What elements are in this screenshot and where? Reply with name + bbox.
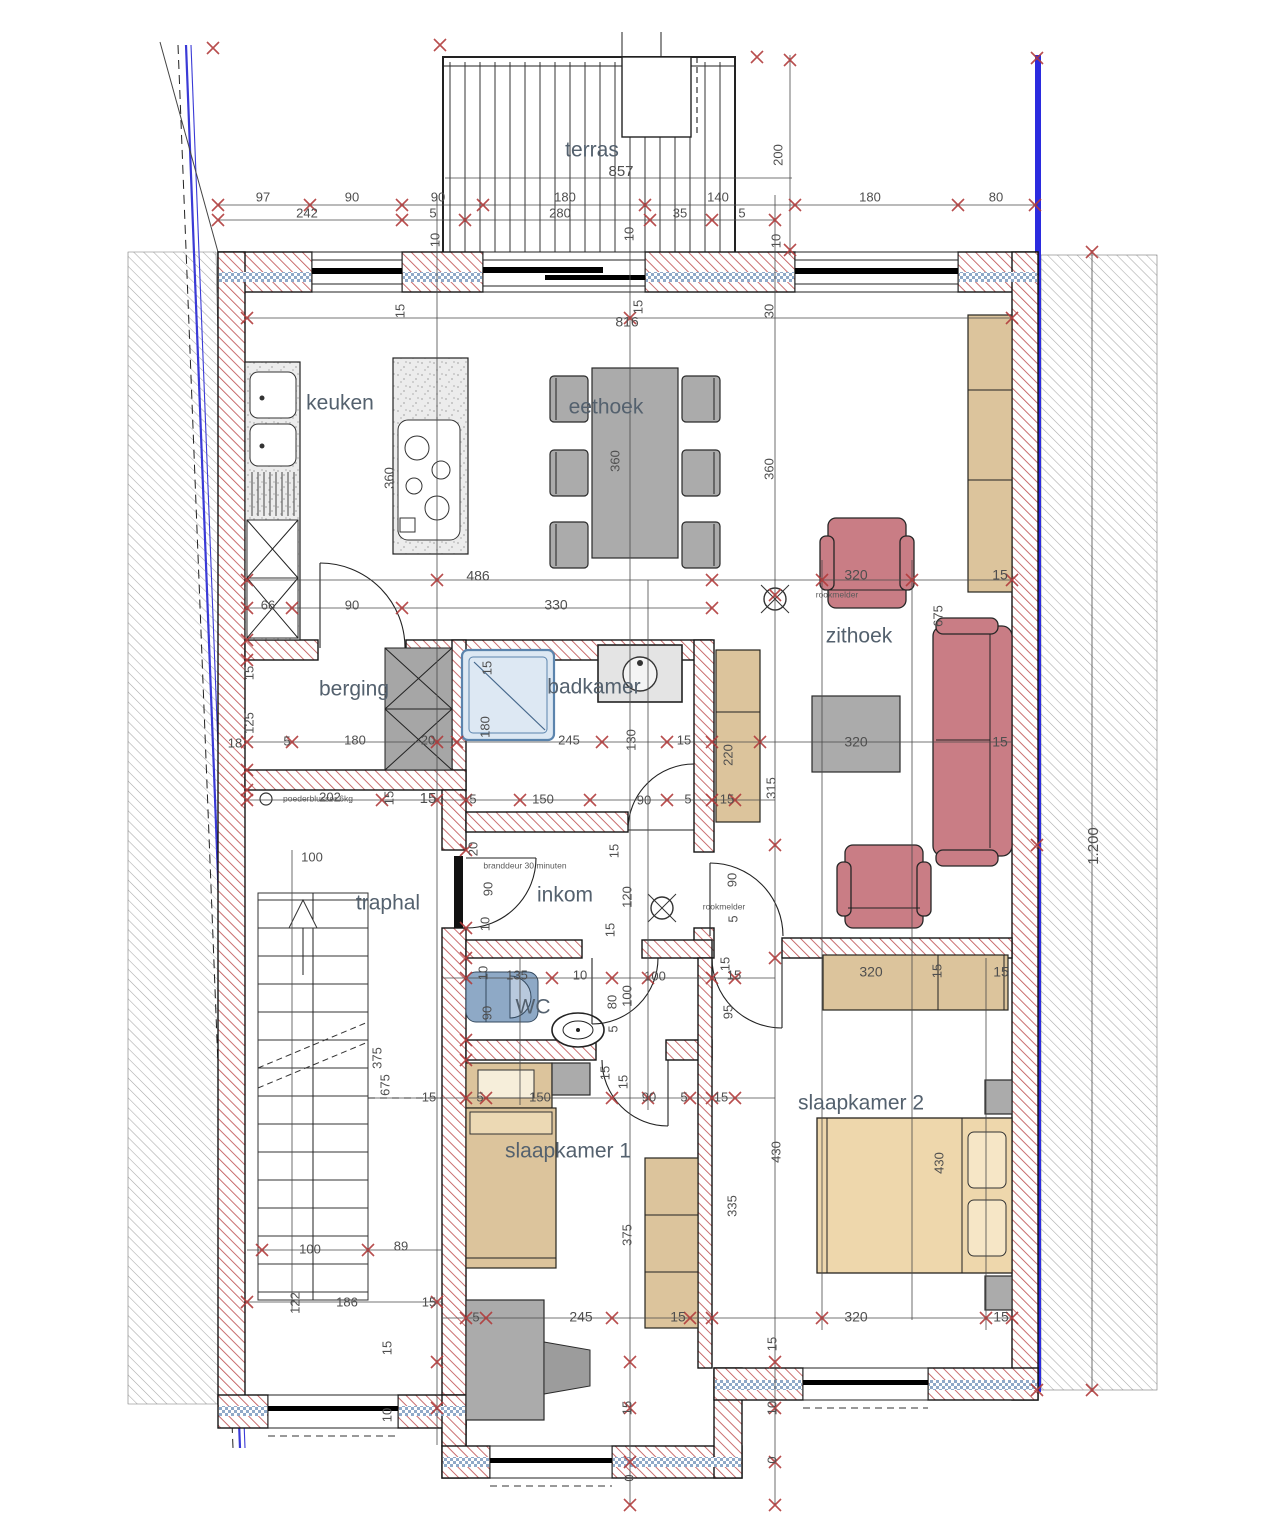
dim-label: 360 (761, 458, 776, 480)
dim-label: 15 (479, 661, 494, 675)
dim-label: 80 (989, 189, 1003, 204)
dim-label: 15 (929, 964, 944, 978)
dim-label: 15 (670, 1309, 686, 1325)
dim-label: 135 (506, 967, 528, 982)
dim-label: 122 (287, 1292, 302, 1314)
dim-tick (207, 42, 219, 54)
dim-label: 10 (475, 966, 490, 980)
dim-label: 200 (770, 144, 785, 166)
dim-label: 180 (477, 716, 492, 738)
dim-label: 15 (630, 300, 645, 314)
annotation-label: rookmelder (703, 901, 746, 911)
dim-label: 89 (394, 1238, 408, 1253)
dim-label: 15 (717, 957, 732, 971)
dim-label: 675 (930, 605, 945, 627)
dim-label: 245 (569, 1309, 593, 1325)
wardrobe-2 (823, 955, 1008, 1010)
dim-label: 150 (529, 1089, 551, 1104)
dim-label: 242 (296, 205, 318, 220)
dim-label: 5 (283, 733, 290, 748)
dim-label: 315 (763, 777, 778, 799)
annotation-label: branddeur 30 minuten (483, 860, 566, 870)
dim-label: 80 (604, 995, 619, 1009)
dim-label: 180 (859, 189, 881, 204)
dim-label: 15 (597, 1066, 612, 1080)
dim-label: 90 (480, 882, 495, 896)
dim-label: 90 (479, 1006, 494, 1020)
dim-label: 375 (369, 1047, 384, 1069)
furniture (245, 315, 1012, 1420)
room-label: inkom (537, 884, 593, 907)
dim-label: 430 (768, 1141, 783, 1163)
dim-label: 320 (844, 567, 868, 583)
dim-label: 15 (392, 304, 407, 318)
dim-label: 186 (336, 1294, 358, 1309)
dim-label: 15 (720, 791, 734, 806)
dim-label: 90 (345, 597, 359, 612)
nightstand (985, 1276, 1012, 1310)
dim-label: 5 (605, 1025, 620, 1032)
dim-label: 486 (466, 568, 490, 584)
dim-label: 10 (764, 1401, 779, 1415)
dim-label: 95 (720, 1005, 735, 1019)
dim-label: 15 (602, 923, 617, 937)
dim-label: 90 (431, 189, 445, 204)
window-bottom-right (803, 1368, 928, 1408)
annotation-labels: rookmelderrookmelderpoederblusser 6kgbra… (283, 589, 858, 911)
dim-label: 375 (619, 1224, 634, 1246)
dim-label: 280 (549, 205, 571, 220)
dim-label: 0 (621, 1474, 636, 1481)
bedroom2-furniture (817, 955, 1012, 1310)
dim-label: 100 (299, 1241, 321, 1256)
dim-label: 5 (469, 791, 476, 806)
dim-tick (751, 51, 763, 63)
dim-label: 320 (859, 964, 883, 980)
shower (462, 650, 554, 740)
dim-label: 330 (544, 597, 568, 613)
room-label: terras (565, 139, 619, 162)
dim-label: 15 (714, 1089, 728, 1104)
floorplan-drawing: 9790901801401808024252803558572001010101… (0, 0, 1280, 1524)
kitchen-island (393, 358, 468, 554)
dim-label: 10 (768, 234, 783, 248)
pillow (968, 1132, 1006, 1188)
dim-label: 90 (724, 873, 739, 887)
dim-label: 15 (241, 666, 256, 680)
dim-label: 360 (607, 450, 622, 472)
room-label: traphal (356, 892, 420, 915)
desk-chair (544, 1342, 590, 1394)
room-label: eethoek (569, 396, 644, 419)
room-label: slaapkamer 2 (798, 1092, 924, 1115)
dim-label: 15 (992, 734, 1008, 750)
dim-label: 15 (381, 791, 396, 805)
dim-label: 10 (427, 233, 442, 247)
dim-label: 97 (256, 189, 270, 204)
sideboard (968, 315, 1012, 592)
dim-label: 675 (377, 1074, 392, 1096)
annotation-label: poederblusser 6kg (283, 793, 353, 803)
dim-label: 15 (993, 1309, 1009, 1325)
dim-label: 245 (558, 732, 580, 747)
dim-label: 15 (422, 1089, 436, 1104)
bedroom1-furniture (466, 1063, 698, 1420)
dim-label: 360 (381, 467, 396, 489)
staircase (258, 893, 368, 1300)
dim-label: 10 (477, 917, 492, 931)
rookmelder-icon (648, 894, 676, 922)
dim-label: 10 (379, 1408, 394, 1422)
wardrobe-1 (645, 1158, 698, 1328)
dim-label: 816 (615, 314, 639, 330)
front-door-leaf (454, 856, 463, 928)
dim-label: 10 (621, 227, 636, 241)
dim-label: 335 (724, 1195, 739, 1217)
dim-label: 150 (532, 791, 554, 806)
dim-label: 100 (619, 985, 634, 1007)
dim-label: 15 (677, 732, 691, 747)
dim-label: 15 (606, 844, 621, 858)
dim-label: 857 (608, 163, 633, 180)
window-bottom-middle (490, 1446, 612, 1486)
dim-label: 5 (725, 915, 740, 922)
dim-label: 30 (761, 304, 776, 318)
sliding-door-terras (483, 252, 645, 292)
dim-label: 320 (844, 1309, 868, 1325)
dim-label: 125 (241, 712, 256, 734)
dim-label: 180 (554, 189, 576, 204)
dim-label: 100 (644, 968, 666, 983)
room-label: keuken (306, 392, 374, 415)
dim-label: 320 (844, 734, 868, 750)
dim-label: 0 (764, 1456, 779, 1463)
room-label: badkamer (547, 676, 640, 699)
dim-label: 18 (228, 735, 242, 750)
floorplan-page: 9790901801401808024252803558572001010101… (0, 0, 1280, 1524)
dim-label: 15 (764, 1337, 779, 1351)
technical-unit (385, 648, 452, 770)
annotation-label: rookmelder (816, 589, 859, 599)
dim-label: 15 (615, 1075, 630, 1089)
dim-label: 90 (637, 792, 651, 807)
dim-label: 5 (738, 205, 745, 220)
sink-drain-icon (260, 396, 265, 401)
dim-label: 90 (642, 1089, 656, 1104)
dim-label: 220 (720, 744, 735, 766)
dim-label: 140 (707, 189, 729, 204)
dim-label: 5 (472, 1309, 479, 1324)
dim-label: 130 (623, 729, 638, 751)
dim-tick (434, 39, 446, 51)
party-wall-right (1012, 252, 1038, 1400)
dim-label: 35 (673, 205, 687, 220)
dim-label: 15 (422, 1294, 436, 1309)
party-wall-left (218, 252, 245, 1404)
dim-label: 180 (344, 732, 366, 747)
window-top-right (795, 252, 958, 292)
dim-label: 15 (420, 790, 437, 807)
dim-label: 66 (261, 597, 275, 612)
dim-label: 15 (992, 567, 1008, 583)
pillow (968, 1200, 1006, 1256)
dim-label: 120 (619, 886, 634, 908)
dim-label: 15 (993, 964, 1009, 980)
room-label: berging (319, 678, 389, 701)
window-top-left (312, 252, 402, 292)
room-label: zithoek (826, 625, 893, 648)
dim-label: 90 (345, 189, 359, 204)
dim-label: 5 (476, 1089, 483, 1104)
room-label: WC (516, 996, 551, 1019)
dim-label: 15 (619, 1401, 634, 1415)
dim-label: 1.200 (1085, 827, 1102, 865)
poederblusser-icon (260, 793, 272, 805)
dim-label: 5 (429, 205, 436, 220)
dim-label: 100 (301, 849, 323, 864)
nightstand (985, 1080, 1012, 1114)
dim-label: 20 (465, 842, 480, 856)
room-label: slaapkamer 1 (505, 1140, 631, 1163)
dim-label: 15 (379, 1341, 394, 1355)
dim-label: 430 (931, 1152, 946, 1174)
terras-structure (622, 57, 691, 137)
dim-label: 10 (573, 967, 587, 982)
dim-label: 5 (684, 791, 691, 806)
armchair-2 (837, 845, 931, 928)
dim-label: 5 (680, 1089, 687, 1104)
dim-label: 20 (421, 732, 435, 747)
